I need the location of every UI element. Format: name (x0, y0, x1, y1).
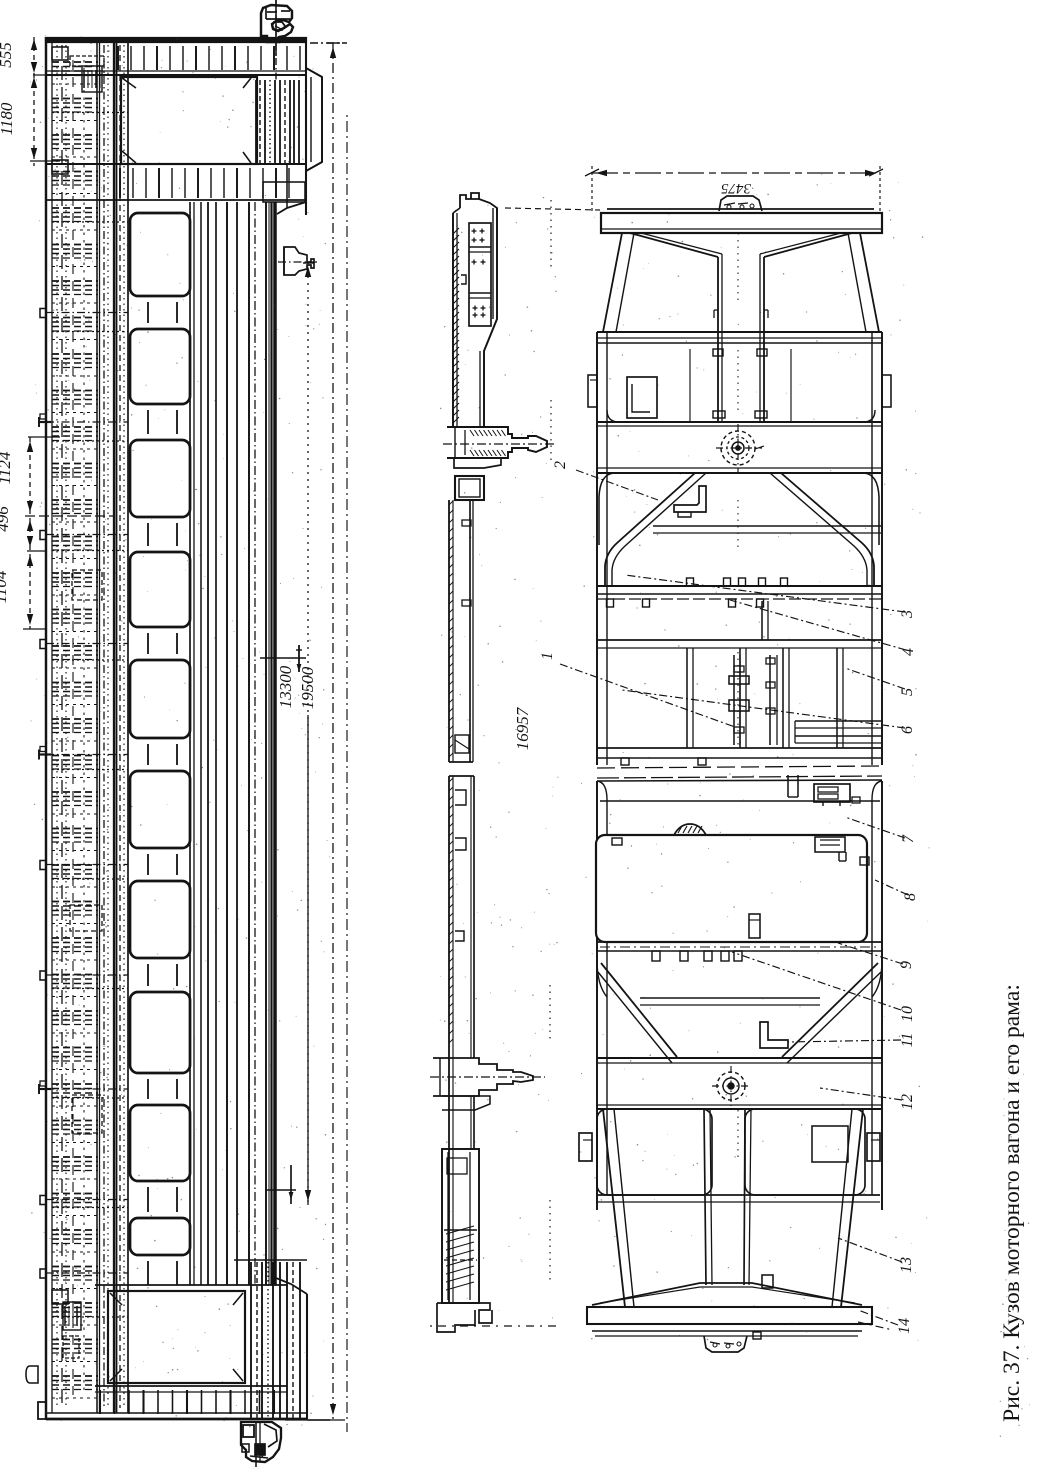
svg-text:13300: 13300 (276, 665, 295, 708)
svg-text:1180: 1180 (0, 102, 16, 135)
svg-text:3475: 3475 (721, 180, 753, 196)
svg-text:Рис. 37. Кузов моторного вагон: Рис. 37. Кузов моторного вагона и его ра… (999, 984, 1025, 1422)
svg-text:5: 5 (899, 688, 916, 696)
svg-text:496: 496 (0, 506, 12, 532)
svg-text:10: 10 (899, 1006, 916, 1022)
svg-text:1: 1 (539, 652, 556, 660)
svg-text:12: 12 (899, 1094, 916, 1110)
svg-text:11: 11 (899, 1033, 916, 1048)
svg-text:9: 9 (898, 961, 915, 969)
svg-text:19500: 19500 (298, 666, 317, 709)
svg-text:1104: 1104 (0, 570, 10, 603)
svg-text:16957: 16957 (513, 706, 532, 750)
svg-text:13: 13 (898, 1257, 915, 1273)
svg-text:555: 555 (0, 42, 15, 68)
svg-text:14: 14 (896, 1318, 913, 1334)
svg-text:2: 2 (552, 461, 569, 469)
svg-text:1124: 1124 (0, 451, 14, 484)
svg-text:7: 7 (900, 834, 917, 843)
svg-text:8: 8 (902, 893, 919, 901)
